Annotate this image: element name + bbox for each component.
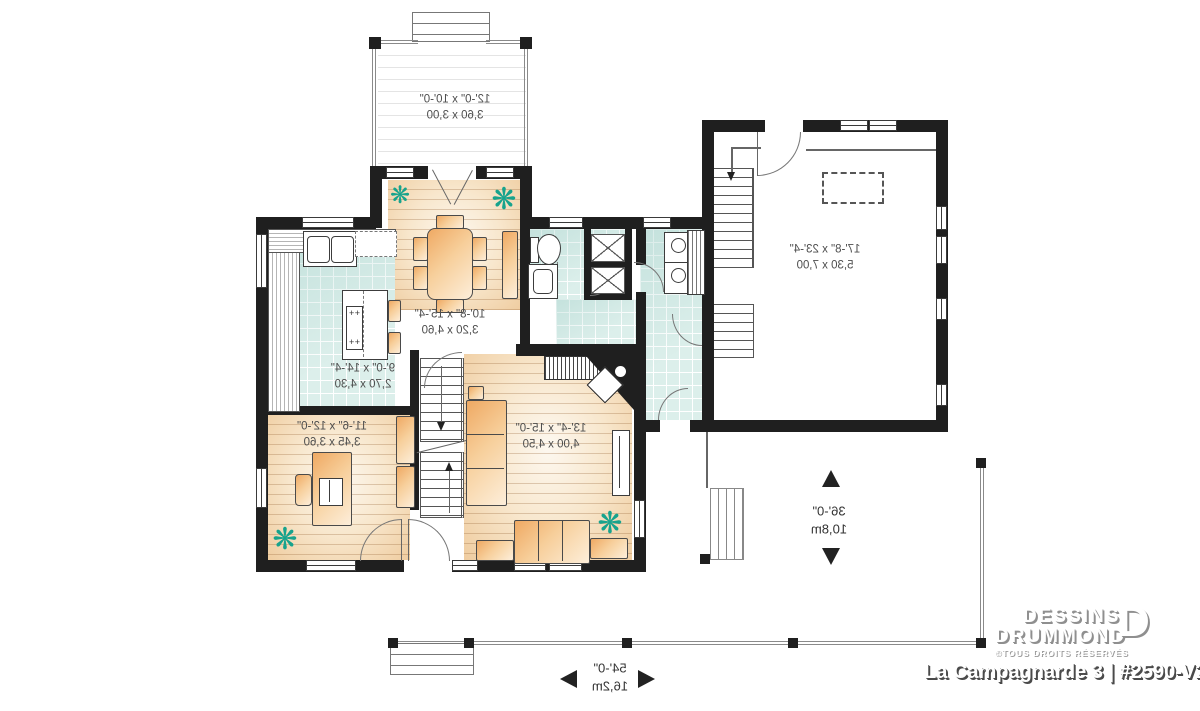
front-door-swing	[408, 519, 450, 561]
depth-imperial: 36'-0"	[811, 502, 847, 520]
side-rail	[706, 432, 708, 488]
wall-living-right	[634, 352, 646, 572]
room-label-living: 13'-4" x 15'-0" 4,00 x 4,50	[516, 421, 587, 452]
window-garage	[936, 206, 947, 230]
dining-chair	[413, 266, 428, 290]
dining-table	[427, 228, 473, 300]
coat-closet-rod	[687, 230, 705, 295]
dining-dim-imperial: 10'-8" x 15'-4"	[415, 307, 486, 323]
kitchen-island-line	[363, 291, 364, 357]
wall-living-top	[516, 344, 644, 356]
deck-dim-metric: 3,60 x 3,00	[420, 108, 491, 124]
wall-mudroom-left	[636, 292, 646, 354]
desk-monitor	[319, 478, 343, 506]
porch-edge	[388, 641, 984, 645]
front-door-leaf	[408, 519, 409, 561]
dining-chair	[413, 237, 428, 261]
floor-plan-canvas: ++++ 12'-0" x 10'-0" 3,60 x	[0, 0, 1200, 711]
deck-rail-right	[524, 42, 528, 168]
depth-metric: 10,8m	[811, 520, 847, 538]
dim-arrow-left	[560, 670, 577, 688]
front-door-opening	[404, 560, 452, 572]
plant-icon	[491, 185, 516, 215]
window-living-side	[634, 500, 645, 538]
garage-door-opening	[765, 120, 803, 132]
dim-arrow-right	[638, 670, 655, 688]
garage-dim-metric: 5,30 x 7,00	[790, 258, 861, 274]
garage-attic-access	[822, 172, 884, 204]
linen-closet	[591, 234, 625, 262]
porch-post	[976, 638, 986, 648]
porch-post	[388, 638, 398, 648]
dishwasher	[355, 231, 397, 257]
office-dim-imperial: 11'-6" x 12'-0"	[297, 419, 367, 435]
kitchen-sink-bowl	[307, 236, 330, 263]
dim-arrow-up	[822, 470, 840, 487]
window	[386, 167, 414, 178]
garage-entry-door-leaf	[757, 132, 758, 176]
cooktop: ++++	[346, 306, 363, 350]
bathroom-sink	[533, 269, 553, 294]
stool	[388, 332, 401, 354]
dining-chair	[436, 215, 464, 229]
width-metric: 16,2m	[592, 677, 628, 695]
brand-name-line1: DESSINS	[1023, 606, 1120, 628]
loveseat	[514, 520, 590, 564]
window-sidelite	[452, 560, 478, 571]
buffet	[502, 231, 518, 299]
back-door-opening	[660, 420, 690, 432]
porch-edge-right	[980, 462, 984, 644]
desk-monitor-line	[329, 480, 330, 502]
garage-entry-door-swing	[757, 132, 801, 176]
plant-icon	[390, 184, 410, 208]
deck-steps	[412, 12, 490, 42]
window-garage-top	[840, 120, 868, 131]
copyright-text: ©TOUS DROITS RÉSERVÉS	[995, 648, 1129, 658]
side-table	[590, 538, 628, 559]
sofa-cushion-line	[467, 468, 504, 469]
overall-depth-label: 36'-0" 10,8m	[811, 502, 847, 537]
media-console-line	[619, 436, 620, 488]
room-label-deck: 12'-0" x 10'-0" 3,60 x 3,00	[420, 92, 491, 123]
porch-post	[622, 638, 632, 648]
living-dim-metric: 4,00 x 4,50	[516, 437, 587, 453]
media-console	[612, 430, 630, 496]
room-label-kitchen: 9'-0" x 14'-4" 2,70 x 4,30	[331, 361, 395, 392]
deck-post-tl	[369, 37, 381, 49]
window-garage	[936, 236, 947, 264]
window-office-side	[256, 468, 267, 508]
porch-post	[464, 638, 474, 648]
window-mudroom	[643, 217, 671, 228]
kitchen-counter-left	[268, 252, 300, 412]
deck-dim-imperial: 12'-0" x 10'-0"	[420, 92, 491, 108]
wall-garage-bottom	[702, 420, 948, 432]
office-dim-metric: 3,45 x 3,60	[297, 435, 367, 451]
sofa	[466, 400, 507, 506]
dining-dim-metric: 3,20 x 4,60	[415, 323, 486, 339]
loveseat-cushion-line	[538, 521, 539, 561]
mudroom-steps	[714, 304, 754, 358]
office-door-leaf	[401, 519, 402, 561]
kitchen-dim-imperial: 9'-0" x 14'-4"	[331, 361, 395, 377]
room-label-garage: 17'-8" x 23'-4" 5,30 x 7,00	[790, 242, 861, 273]
window-kitchen	[302, 217, 354, 228]
garage-stairs-arrow	[727, 172, 735, 181]
deck-rail-left	[372, 42, 376, 168]
stairs-up	[420, 452, 464, 518]
dining-chair	[472, 266, 487, 290]
stairs-down-arrow	[437, 422, 445, 431]
desk-chair	[295, 474, 312, 506]
dim-arrow-down	[822, 548, 840, 565]
porch-steps	[390, 643, 474, 675]
window-bath	[549, 217, 583, 228]
garage-stairs	[714, 168, 754, 268]
window	[486, 167, 514, 178]
window-office-front	[306, 560, 356, 571]
porch-post	[700, 554, 710, 564]
stairs-up-arrow	[445, 462, 453, 471]
room-label-office: 11'-6" x 12'-0" 3,45 x 3,60	[297, 419, 367, 450]
brand-name-line2: DRUMMOND	[995, 626, 1126, 648]
deck-post-tr	[520, 37, 532, 49]
plant-icon	[272, 525, 297, 555]
garage-shelf	[806, 149, 936, 151]
bookshelf	[396, 416, 415, 464]
sofa-cushion-line	[467, 434, 504, 435]
dining-chair	[472, 237, 487, 261]
window-garage-top	[869, 120, 897, 131]
overall-width-label: 54'-0" 16,2m	[592, 659, 628, 694]
fireplace-flue	[615, 366, 626, 377]
side-table	[476, 540, 514, 561]
garage-dim-imperial: 17'-8" x 23'-4"	[790, 242, 861, 258]
porch-post	[976, 458, 986, 468]
plant-icon	[597, 509, 622, 539]
stool	[388, 300, 401, 322]
garage-stairs-line	[731, 147, 733, 173]
dryer-door	[671, 268, 686, 283]
window-kitchen-side	[256, 234, 267, 288]
closet	[591, 267, 625, 294]
wall-mudroom-left	[636, 229, 646, 265]
bookshelf	[396, 466, 415, 508]
stairs-up-line	[449, 471, 450, 513]
wall-garage-top	[702, 120, 948, 132]
width-imperial: 54'-0"	[592, 659, 628, 677]
porch-post	[788, 638, 798, 648]
kitchen-sink-bowl	[331, 236, 354, 263]
room-label-dining: 10'-8" x 15'-4" 3,20 x 4,60	[415, 307, 486, 338]
side-steps	[710, 488, 744, 560]
kitchen-dim-metric: 2,70 x 4,30	[331, 377, 395, 393]
window-garage	[936, 384, 947, 406]
side-table	[468, 386, 484, 400]
window-garage	[936, 298, 947, 320]
plan-title: La Campagnarde 3 | #2590-V2	[924, 661, 1200, 684]
washer-door	[671, 238, 686, 253]
drummond-logo-mark: D	[1118, 600, 1150, 644]
living-dim-imperial: 13'-4" x 15'-0"	[516, 421, 587, 437]
loveseat-cushion-line	[562, 521, 563, 561]
